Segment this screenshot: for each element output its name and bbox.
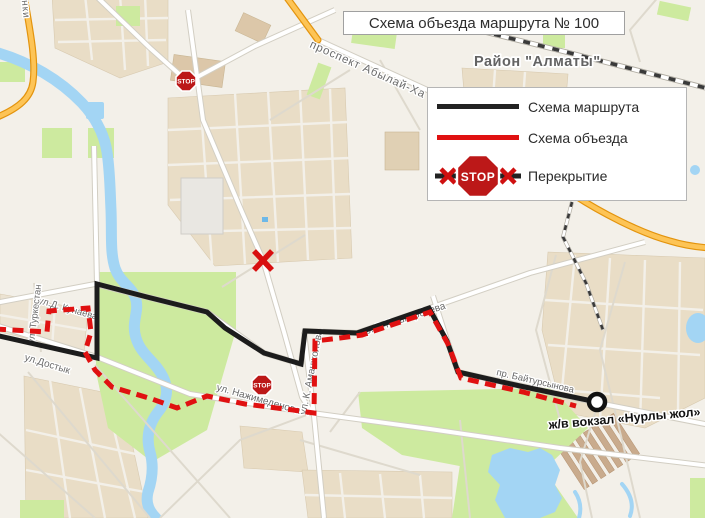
route-line-sample [437, 104, 519, 109]
title-text: Схема объезда маршрута № 100 [369, 15, 599, 32]
legend-closure-label: Перекрытие [528, 168, 607, 184]
district-label: Район "Алматы" [474, 54, 601, 70]
legend-item-route: Схема маршрута [428, 91, 686, 122]
legend-route-label: Схема маршрута [528, 99, 639, 115]
legend-item-detour: Схема объезда [428, 122, 686, 153]
route-endpoint [589, 394, 605, 410]
svg-text:STOP: STOP [253, 382, 271, 389]
large-building [181, 178, 223, 234]
stop-sign-north-icon: STOP [176, 71, 196, 91]
legend: Схема маршрута Схема объезда STOP Перекр… [427, 87, 687, 201]
legend-item-closure: STOP Перекрытие [428, 153, 686, 199]
title-box: Схема объезда маршрута № 100 [343, 11, 625, 35]
svg-text:STOP: STOP [177, 78, 195, 85]
legend-detour-label: Схема объезда [528, 130, 628, 146]
detour-line-sample [437, 135, 519, 140]
svg-text:STOP: STOP [461, 170, 495, 184]
stop-sign-south-icon: STOP [252, 375, 272, 395]
closure-sample-icon: STOP [431, 153, 525, 199]
map-canvas[interactable]: проспект Абылай-Ха Район "Алматы" ул.Д. … [0, 0, 705, 518]
